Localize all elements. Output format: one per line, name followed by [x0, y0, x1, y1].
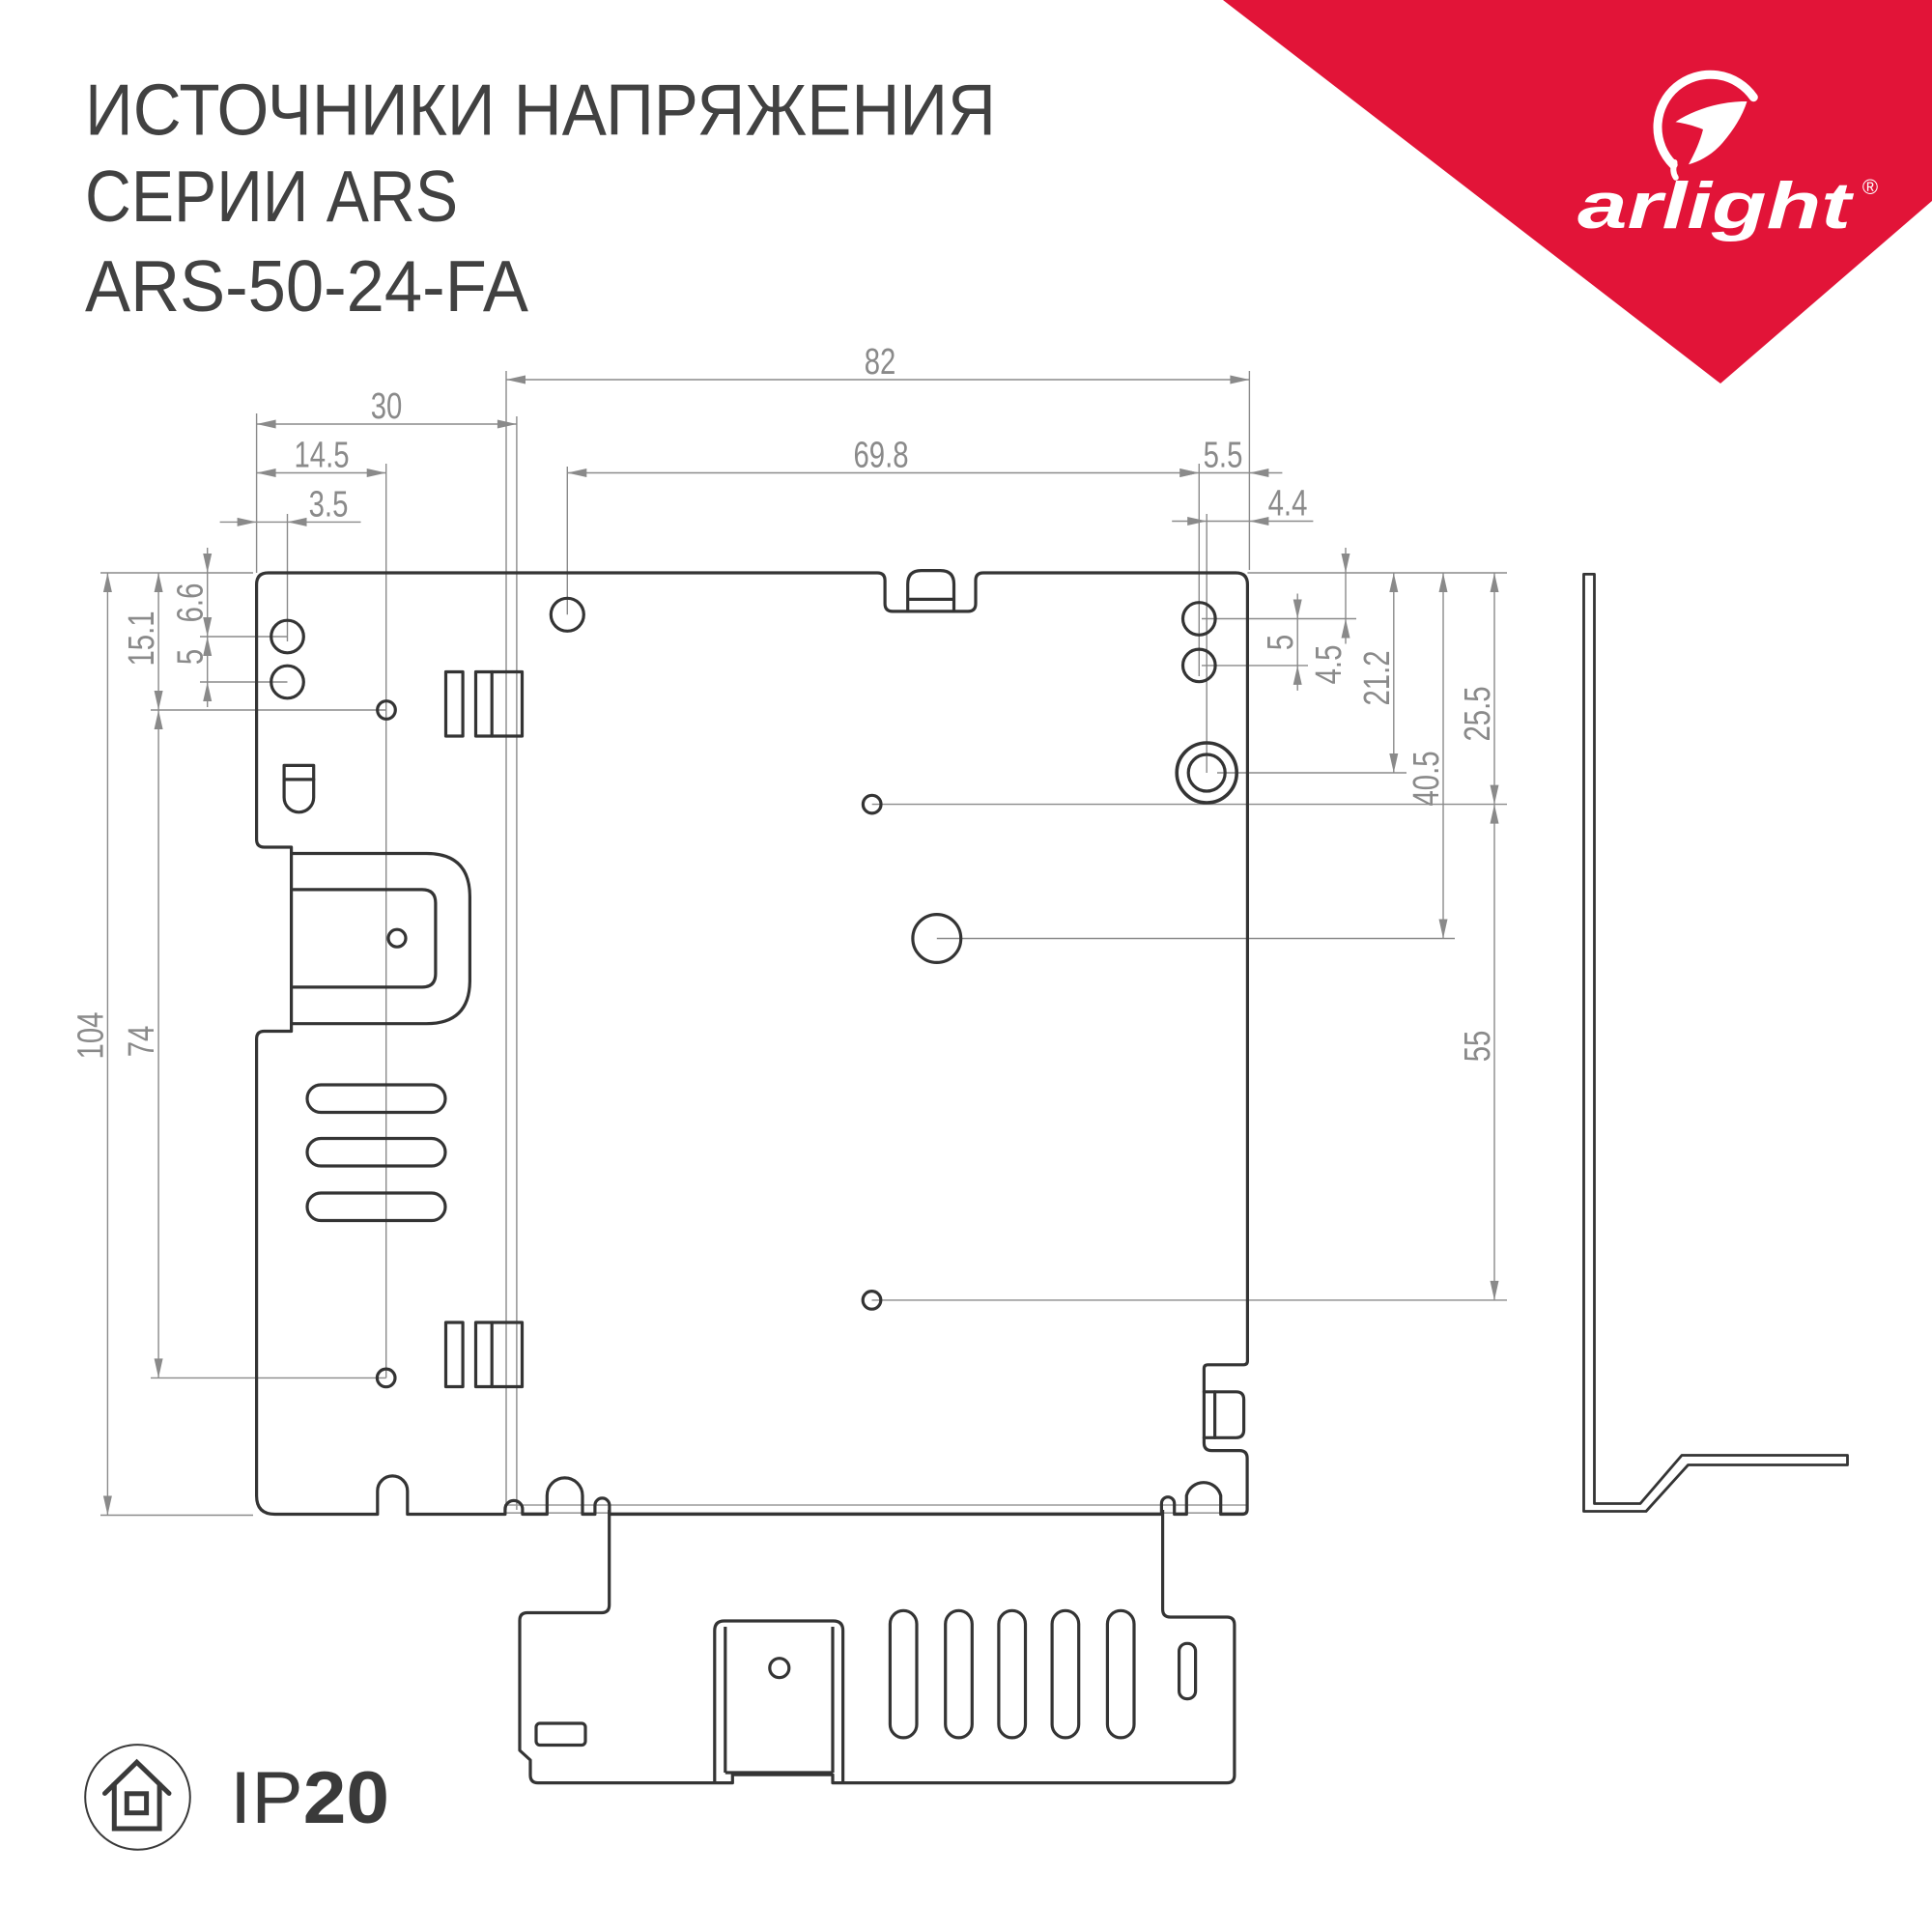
svg-text:74: 74 — [122, 1026, 162, 1058]
svg-text:4.4: 4.4 — [1268, 484, 1308, 525]
svg-text:14.5: 14.5 — [294, 436, 349, 476]
svg-text:40.5: 40.5 — [1406, 751, 1447, 806]
svg-text:69.8: 69.8 — [853, 436, 908, 476]
svg-text:5: 5 — [171, 649, 212, 665]
svg-text:104: 104 — [71, 1012, 111, 1060]
svg-text:СЕРИИ ARS: СЕРИИ ARS — [85, 156, 458, 237]
svg-text:3.5: 3.5 — [309, 484, 349, 525]
svg-text:82: 82 — [865, 342, 896, 383]
svg-text:25.5: 25.5 — [1458, 686, 1498, 741]
svg-text:5.5: 5.5 — [1204, 436, 1243, 476]
svg-text:ИСТОЧНИКИ НАПРЯЖЕНИЯ: ИСТОЧНИКИ НАПРЯЖЕНИЯ — [85, 70, 996, 151]
svg-text:5: 5 — [1261, 635, 1301, 650]
svg-text:15.1: 15.1 — [122, 611, 162, 666]
svg-text:arlight: arlight — [1577, 169, 1854, 242]
svg-text:®: ® — [1862, 175, 1878, 199]
svg-text:6.6: 6.6 — [171, 583, 212, 623]
svg-text:55: 55 — [1458, 1031, 1498, 1063]
svg-text:4.5: 4.5 — [1309, 645, 1350, 685]
svg-text:IP20: IP20 — [230, 1757, 389, 1839]
svg-text:ARS-50-24-FA: ARS-50-24-FA — [85, 245, 528, 327]
svg-text:21.2: 21.2 — [1357, 650, 1398, 705]
svg-text:30: 30 — [371, 386, 403, 427]
